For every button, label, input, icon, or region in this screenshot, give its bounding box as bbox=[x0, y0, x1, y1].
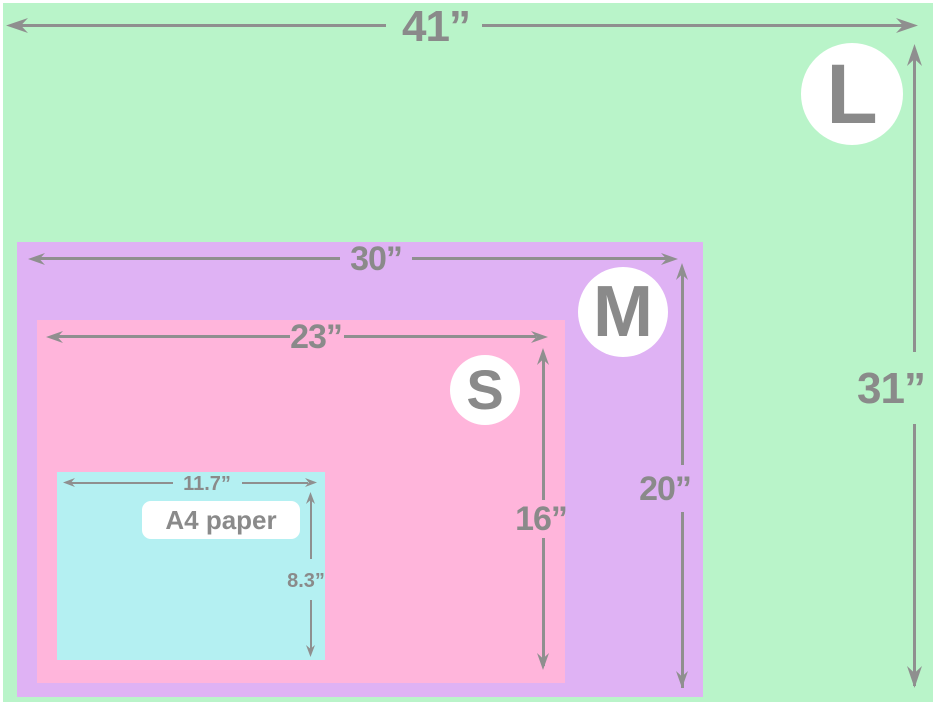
dimension-line bbox=[913, 424, 916, 686]
dimension-line bbox=[68, 482, 173, 484]
size-comparison-diagram: 41” 31” 30” 20” 23” 16” 11.7” 8.3” L M S bbox=[0, 0, 938, 712]
dimension-line bbox=[412, 257, 668, 260]
dimension-line bbox=[681, 269, 684, 465]
size-l-badge: L bbox=[801, 43, 903, 145]
medium-height-label: 20” bbox=[639, 472, 691, 506]
small-width-label: 23” bbox=[290, 320, 342, 354]
dimension-line bbox=[12, 24, 386, 27]
large-height-label: 31” bbox=[857, 367, 925, 411]
dimension-line bbox=[52, 335, 290, 338]
dimension-line bbox=[542, 538, 545, 666]
a4-width-label: 11.7” bbox=[183, 474, 231, 494]
medium-width-label: 30” bbox=[350, 242, 402, 276]
small-height-label: 16” bbox=[515, 502, 567, 536]
size-s-badge: S bbox=[450, 355, 520, 425]
dimension-line bbox=[681, 512, 684, 688]
dimension-line bbox=[482, 24, 908, 27]
dimension-line bbox=[310, 600, 312, 653]
size-l-badge-letter: L bbox=[826, 52, 877, 136]
size-m-badge: M bbox=[578, 267, 668, 357]
dimension-line bbox=[310, 497, 312, 559]
a4-paper-pill: A4 paper bbox=[142, 501, 300, 539]
dimension-line bbox=[913, 49, 916, 352]
dimension-line bbox=[34, 257, 340, 260]
large-width-label: 41” bbox=[402, 5, 470, 49]
dimension-line bbox=[542, 354, 545, 500]
size-s-badge-letter: S bbox=[466, 362, 503, 418]
a4-paper-label: A4 paper bbox=[165, 505, 276, 536]
a4-height-label: 8.3” bbox=[287, 571, 325, 591]
size-m-badge-letter: M bbox=[593, 276, 653, 348]
dimension-line bbox=[242, 482, 308, 484]
dimension-line bbox=[344, 335, 536, 338]
